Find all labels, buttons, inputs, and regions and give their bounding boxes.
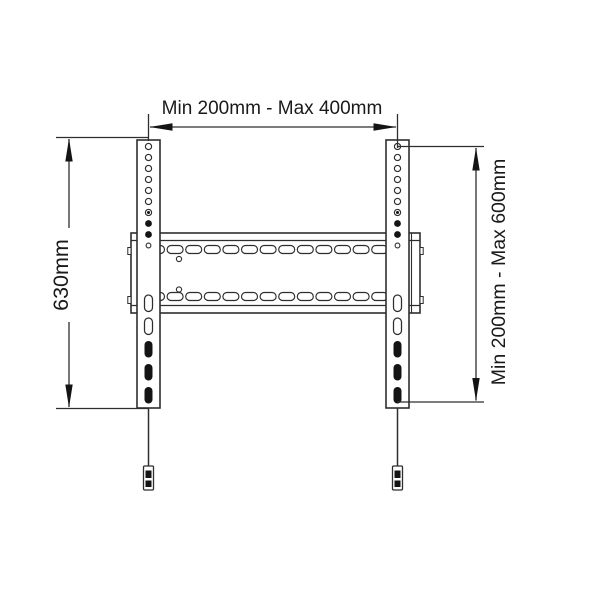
plate-slot [242,293,258,301]
rail-hole [145,154,151,160]
rail-hole [394,187,400,193]
rail-hole [394,165,400,171]
arrowhead-up [65,139,72,162]
rail-hole-filled [145,220,152,227]
rail-hole-small [395,243,400,248]
rail-slot [394,295,402,312]
wall-plate [128,233,423,313]
cord-pull-tab-band [395,481,401,488]
plate-slot [316,246,332,254]
rail-slot-filled [394,387,402,404]
rail-slot-filled [145,387,153,404]
arrowhead-down [65,385,72,408]
plate-slot [279,293,295,301]
rail-slot-filled [145,341,153,358]
plate-slot [204,293,220,301]
plate-slot [279,246,295,254]
plate-hole [176,287,181,292]
cord-pull-tab-band [146,481,152,488]
plate-slot [297,246,313,254]
rail-slot [145,318,153,335]
plate-slot [260,246,276,254]
plate-slot [167,293,183,301]
cord-pull-tab-band [146,471,152,479]
rail-hole [145,143,151,149]
wall-plate-hook-tab [128,248,131,255]
rail-hole-center [396,211,399,214]
rail-hole-small [146,243,151,248]
plate-slot [186,246,202,254]
plate-slot [353,246,369,254]
rail-hole-filled [394,220,401,227]
pull-cords [144,408,403,490]
mount-dimension-diagram: Min 200mm - Max 400mm 630mm Min 200mm - … [0,0,600,600]
wall-plate-hook-tab [420,248,423,255]
plate-slot [335,293,351,301]
plate-slot [353,293,369,301]
arrowhead-up [472,148,479,171]
dimension-top: Min 200mm - Max 400mm [149,98,398,148]
rail-slot-filled [394,341,402,358]
dimension-label-top: Min 200mm - Max 400mm [162,98,383,119]
plate-slot [297,293,313,301]
plate-slot [335,246,351,254]
wall-plate-hook-tab [420,297,423,304]
plate-slot [186,293,202,301]
rail-slot [145,295,153,312]
plate-slot [260,293,276,301]
plate-slot [316,293,332,301]
rail-slot-filled [145,364,153,381]
plate-slot [167,246,183,254]
plate-hole [176,256,181,261]
diagram-canvas: Min 200mm - Max 400mm 630mm Min 200mm - … [0,0,600,600]
dimension-label-right: Min 200mm - Max 600mm [488,159,510,385]
rail-hole-filled [145,231,152,238]
rail-slot-filled [394,364,402,381]
cord-pull-tab-band [395,471,401,479]
plate-slot [204,246,220,254]
rail-hole [394,176,400,182]
arrowhead-right [374,123,397,130]
plate-slot [223,246,239,254]
plate-slot [223,293,239,301]
rail-hole [145,165,151,171]
rail-hole-filled [394,231,401,238]
rail-hole [145,187,151,193]
right-rail [386,140,409,408]
plate-slot [242,246,258,254]
rail-slot [394,318,402,335]
wall-plate-hook-tab [128,297,131,304]
dimension-label-left: 630mm [49,239,73,311]
rail-hole [394,154,400,160]
left-rail [137,140,160,408]
rail-hole [145,176,151,182]
rail-hole-center [147,211,150,214]
rail-hole [394,198,400,204]
arrowhead-left [150,123,173,130]
rail-hole [145,198,151,204]
arrowhead-down [472,378,479,401]
